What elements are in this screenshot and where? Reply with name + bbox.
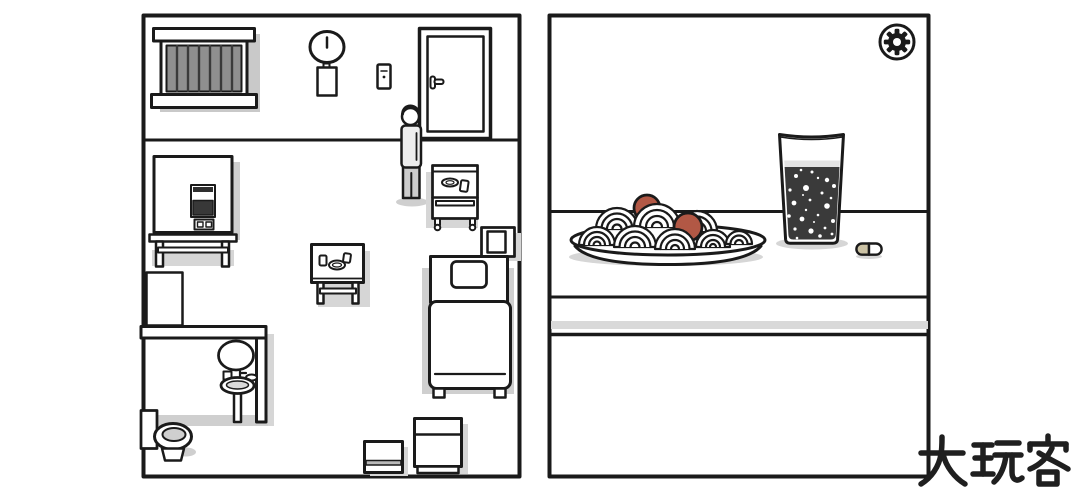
window-bottom-sill (152, 95, 257, 108)
bathroom-wall-right (257, 338, 267, 422)
blanket[interactable] (430, 302, 511, 389)
bathroom-wall-top (141, 327, 266, 339)
pill-right-half (869, 244, 882, 255)
door[interactable] (420, 29, 491, 139)
side-table[interactable] (312, 245, 371, 308)
watermark-text: 大玩客 (916, 428, 1075, 498)
pill-left-half (856, 244, 869, 255)
gear-icon (884, 29, 910, 55)
serving-cart[interactable] (426, 166, 478, 231)
barred-window[interactable] (152, 29, 261, 113)
bed[interactable] (422, 257, 514, 398)
storage-box-large[interactable] (415, 419, 469, 475)
room-map-panel (141, 16, 521, 477)
window-top-sill (154, 29, 255, 42)
wall-clock[interactable] (310, 32, 344, 63)
light-switch[interactable] (378, 65, 391, 89)
pill[interactable] (856, 244, 882, 260)
game-screen: 大玩客 (0, 0, 1080, 498)
person-torso (402, 126, 422, 168)
machine-hatch[interactable] (193, 201, 213, 216)
table-scene-panel (550, 16, 929, 477)
settings-button[interactable] (880, 25, 914, 59)
machine-strip (193, 187, 213, 192)
bathroom-cabinet[interactable] (147, 273, 183, 326)
storage-box-small[interactable] (365, 442, 409, 477)
scene-svg (0, 0, 1080, 498)
pillow[interactable] (452, 262, 487, 288)
food-machine[interactable] (150, 157, 241, 267)
cola-glass[interactable] (776, 135, 848, 250)
paper-note[interactable] (318, 64, 337, 96)
cola-foam (784, 161, 840, 168)
mirror[interactable] (219, 341, 254, 370)
table-ledge-shadow (551, 321, 928, 329)
